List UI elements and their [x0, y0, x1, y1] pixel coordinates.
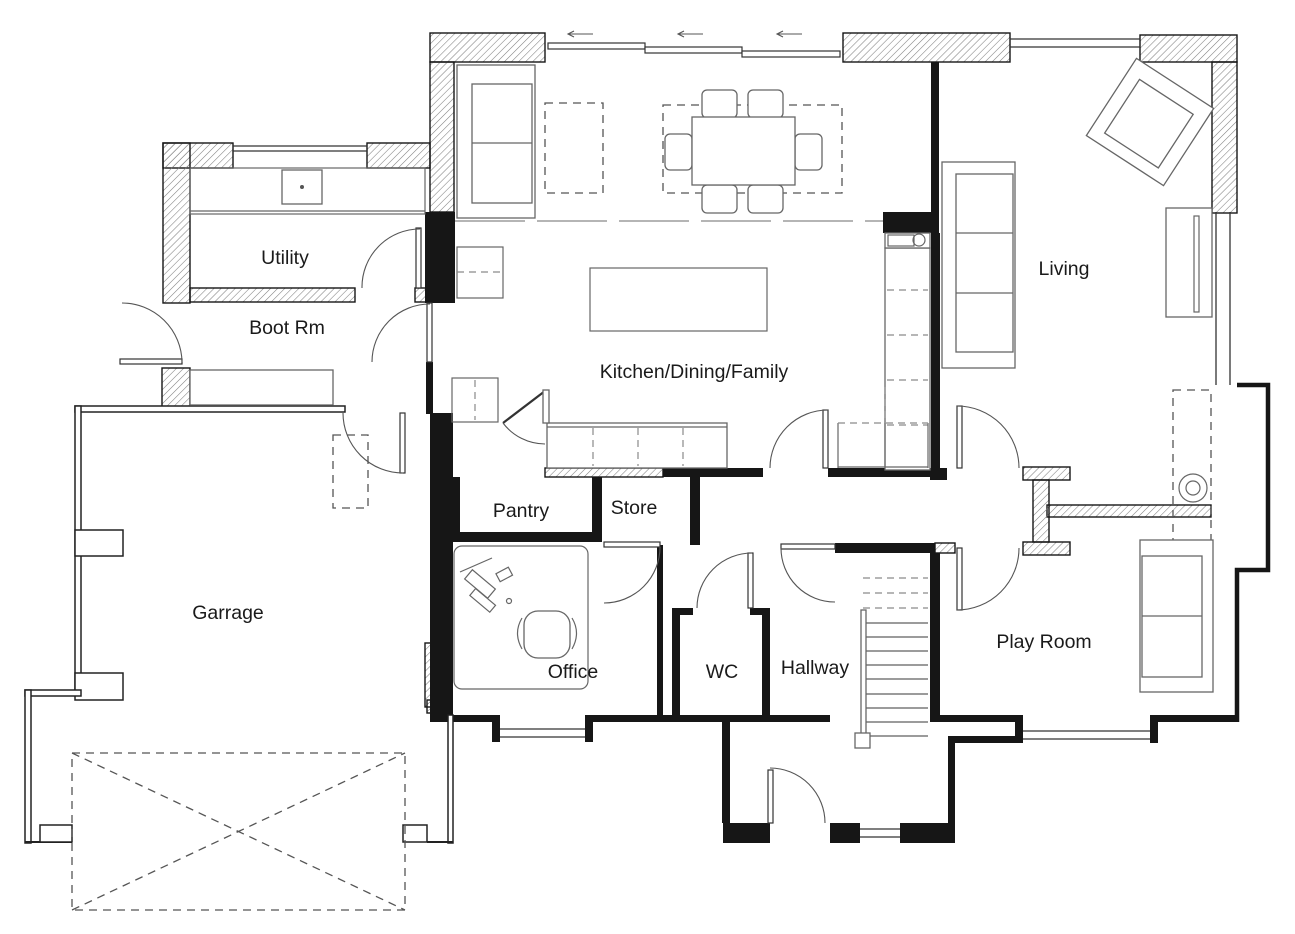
dining-table — [692, 117, 795, 185]
hall-stairs-door — [781, 544, 835, 602]
media-unit — [1166, 208, 1212, 317]
garage-door-dashed-box — [72, 753, 405, 910]
utility-door — [362, 228, 421, 288]
play-room-door-lower — [957, 548, 1019, 610]
slide-arrow-icon — [568, 31, 802, 37]
room-label-pantry: Pantry — [493, 500, 550, 522]
desk-equipment-icon — [460, 558, 513, 612]
sliding-patio-doors — [548, 31, 840, 57]
office-chair-icon — [518, 611, 577, 658]
garage-tank-dashed — [333, 435, 368, 508]
room-label-boot-rm: Boot Rm — [249, 317, 325, 339]
kitchen-side-cabinet — [457, 247, 503, 298]
living-top-window — [1010, 39, 1140, 47]
log-burner-stove-icon — [1179, 474, 1207, 502]
floor-plan-page: Utility Boot Rm Kitchen/Dining/Family Li… — [0, 0, 1295, 934]
boot-room-inner-door — [372, 303, 432, 362]
wc-door — [697, 553, 753, 608]
utility-counter — [190, 168, 425, 214]
kitchen-counter — [543, 390, 727, 468]
room-label-kitchen: Kitchen/Dining/Family — [600, 361, 789, 383]
boot-room-bench — [190, 370, 333, 405]
room-label-wc: WC — [706, 661, 739, 683]
stairs — [855, 578, 928, 748]
porch-side-window — [860, 829, 900, 837]
living-armchair — [1086, 58, 1213, 185]
family-rug — [545, 103, 603, 193]
newel-post — [855, 733, 870, 748]
living-side-window — [1216, 212, 1230, 385]
room-label-garage: Garrage — [192, 602, 264, 624]
kitchen-hall-door — [770, 410, 828, 468]
stair-handrail — [861, 610, 866, 736]
kitchen-sofa — [457, 65, 535, 218]
garage-door — [343, 413, 405, 473]
floor-plan-drawing: Utility Boot Rm Kitchen/Dining/Family Li… — [0, 0, 1295, 934]
play-room-door-upper — [957, 406, 1019, 468]
kitchen-tall-units — [885, 233, 930, 470]
room-label-hallway: Hallway — [781, 657, 850, 679]
room-label-utility: Utility — [261, 247, 309, 269]
play-room-sofa — [1140, 540, 1213, 692]
kitchen-island — [590, 268, 767, 331]
front-door — [768, 768, 825, 823]
office-window — [500, 729, 585, 737]
corridor-cabinet — [452, 378, 498, 422]
room-label-living: Living — [1039, 258, 1090, 280]
living-sofa — [942, 162, 1015, 368]
room-label-store: Store — [611, 497, 658, 519]
kitchen-corner-door — [503, 391, 545, 444]
store-door — [604, 542, 660, 603]
play-room-window — [1023, 731, 1150, 739]
room-label-office: Office — [548, 661, 599, 683]
boot-room-external-door — [120, 303, 182, 364]
room-label-play-room: Play Room — [996, 631, 1091, 653]
utility-window — [233, 146, 367, 151]
